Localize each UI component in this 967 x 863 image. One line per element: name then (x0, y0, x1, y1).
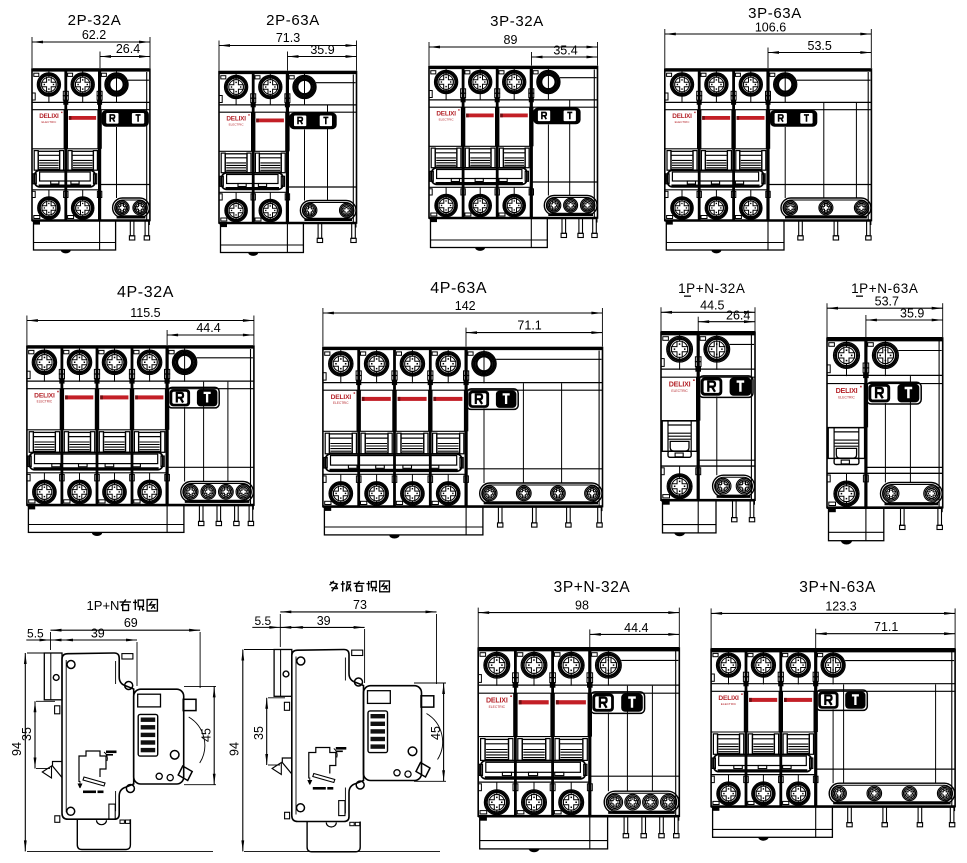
svg-text:DELIXI: DELIXI (669, 381, 691, 389)
svg-text:ELECTRIC: ELECTRIC (489, 705, 506, 709)
svg-text:3P-32A: 3P-32A (490, 13, 544, 30)
svg-text:39: 39 (91, 627, 105, 641)
svg-text:DELIXI: DELIXI (34, 393, 55, 400)
svg-text:94: 94 (10, 742, 24, 756)
svg-text:89: 89 (504, 33, 518, 47)
svg-text:ELECTRIC: ELECTRIC (37, 400, 53, 404)
svg-text:71.3: 71.3 (276, 31, 300, 45)
svg-text:DELIXI: DELIXI (331, 394, 352, 401)
svg-text:62.2: 62.2 (82, 28, 106, 42)
svg-text:98: 98 (575, 599, 589, 613)
svg-text:53.7: 53.7 (875, 295, 899, 309)
svg-text:26.4: 26.4 (116, 42, 140, 56)
svg-text:45: 45 (429, 726, 443, 740)
svg-text:ELECTRIC: ELECTRIC (671, 389, 688, 393)
svg-text:ELECTRIC: ELECTRIC (41, 120, 57, 124)
svg-text:ELECTRIC: ELECTRIC (721, 702, 737, 706)
svg-text:DELIXI: DELIXI (486, 697, 508, 705)
svg-text:ELECTRIC: ELECTRIC (675, 120, 691, 124)
svg-text:94: 94 (228, 742, 242, 756)
svg-text:142: 142 (455, 299, 476, 313)
svg-text:71.1: 71.1 (517, 319, 541, 333)
svg-text:39: 39 (317, 614, 331, 628)
svg-text:71.1: 71.1 (874, 620, 898, 634)
svg-text:35.9: 35.9 (310, 43, 334, 57)
svg-text:5.5: 5.5 (27, 627, 44, 641)
svg-text:ELECTRIC: ELECTRIC (439, 118, 455, 122)
svg-text:123.3: 123.3 (825, 599, 856, 613)
svg-text:1P+N: 1P+N (87, 598, 120, 613)
svg-text:35: 35 (252, 726, 266, 740)
svg-text:35.9: 35.9 (900, 307, 924, 321)
svg-text:ELECTRIC: ELECTRIC (333, 401, 349, 405)
svg-text:DELIXI: DELIXI (718, 695, 739, 702)
svg-text:2P-63A: 2P-63A (266, 12, 320, 29)
svg-text:ELECTRIC: ELECTRIC (229, 123, 245, 127)
svg-text:2P-32A: 2P-32A (68, 12, 122, 29)
svg-text:45: 45 (200, 728, 214, 742)
svg-text:ELECTRIC: ELECTRIC (838, 396, 855, 400)
svg-text:3P-63A: 3P-63A (748, 5, 802, 22)
svg-text:DELIXI: DELIXI (836, 387, 858, 395)
svg-text:3P+N-63A: 3P+N-63A (799, 579, 876, 596)
svg-text:26.4: 26.4 (726, 309, 750, 323)
svg-text:35.4: 35.4 (553, 44, 577, 58)
svg-text:3P+N-32A: 3P+N-32A (554, 579, 631, 596)
svg-text:73: 73 (353, 598, 367, 612)
svg-text:106.6: 106.6 (755, 21, 786, 35)
svg-text:44.5: 44.5 (700, 299, 724, 313)
svg-text:4P-63A: 4P-63A (430, 280, 487, 297)
svg-text:44.4: 44.4 (624, 621, 648, 635)
svg-text:69: 69 (124, 616, 138, 630)
svg-text:1P+N-32A: 1P+N-32A (678, 281, 745, 296)
svg-text:44.4: 44.4 (196, 321, 220, 335)
svg-text:5.5: 5.5 (254, 614, 271, 628)
svg-text:53.5: 53.5 (808, 39, 832, 53)
svg-text:115.5: 115.5 (130, 306, 160, 320)
svg-text:4P-32A: 4P-32A (117, 284, 174, 301)
svg-text:35: 35 (20, 727, 34, 741)
